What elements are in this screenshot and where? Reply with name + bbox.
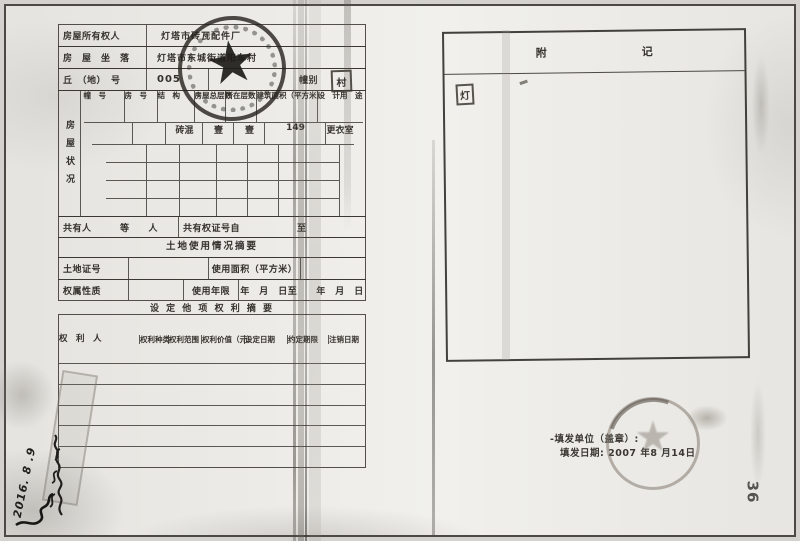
coowner-left: 共有人 等 人	[59, 217, 179, 237]
ownership-nature-label: 权属性质	[59, 280, 129, 300]
land-area-blank	[301, 258, 365, 279]
rights-table-empty-row	[59, 447, 365, 467]
faded-star-icon: ★	[609, 416, 697, 458]
land-section-title: 土地使用情况摘要	[166, 238, 258, 257]
house-table-empty-row	[106, 163, 340, 181]
coowner-row: 共有人 等 人 共有权证号自 至	[58, 216, 366, 238]
tenure-years-label: 使用年限	[184, 280, 239, 300]
land-cert-row: 土地证号 使用面积（平方米）	[58, 257, 366, 280]
stamp-smudge	[686, 405, 728, 431]
house-status-side-label: 房屋状况	[59, 91, 81, 216]
rights-section-title: 设 定 他 项 权 利 摘 要	[150, 301, 274, 314]
remarks-header: 附 记	[444, 30, 744, 75]
plot-box-stamp: 村	[331, 70, 353, 93]
rights-table-empty-row	[59, 364, 365, 385]
land-area-label: 使用面积（平方米）	[209, 258, 301, 279]
house-table-empty-row	[106, 181, 340, 199]
tenure-row: 权属性质 使用年限 年 月 日至 年 月 日	[58, 279, 366, 301]
area-value: 149	[265, 123, 326, 144]
rights-table-empty-row	[59, 426, 365, 447]
corner-box-stamp: 灯	[455, 84, 474, 106]
coowner-right: 共有权证号自 至	[179, 217, 365, 237]
remarks-title-char2: 记	[642, 43, 653, 59]
rights-table-empty-row	[59, 385, 365, 406]
rights-table-empty-row	[59, 406, 365, 427]
floor-value: 壹	[234, 123, 265, 144]
structure-value: 砖混	[166, 123, 203, 144]
land-cert-blank	[129, 258, 209, 279]
ink-mark	[519, 80, 528, 85]
ownership-nature-blank	[129, 280, 184, 300]
rights-table-header: 权 利 人 权利种类 权利范围 权利价值（元） 设定日期 约定期限 注销日期	[59, 315, 365, 364]
total-floors-value: 壹	[203, 123, 234, 144]
building-type-label: 幢别	[295, 73, 318, 86]
tenure-dates: 年 月 日至 年 月 日	[239, 280, 365, 300]
house-table-empty-row	[106, 145, 340, 163]
location-label: 房 屋 坐 落	[59, 47, 147, 68]
plot-label: 丘 （地） 号	[59, 69, 147, 90]
house-table-data-row: 砖混 壹 壹 149 更衣室	[92, 123, 353, 145]
owner-label: 房屋所有权人	[59, 25, 147, 46]
house-table-empty-row	[106, 199, 340, 216]
land-cert-label: 土地证号	[59, 258, 129, 279]
usage-value: 更衣室	[326, 123, 353, 144]
rights-section-title-row: 设 定 他 项 权 利 摘 要	[58, 300, 366, 314]
scanned-certificate-page: 房屋所有权人 灯塔市砖瓦配件厂 房 屋 坐 落 灯塔市东城街道阳车村 丘 （地）…	[0, 0, 800, 541]
page-number: 36	[743, 481, 761, 504]
land-section-title-row: 土地使用情况摘要	[58, 237, 366, 258]
page-number-container: 36	[736, 476, 768, 508]
remarks-title-char1: 附	[536, 45, 547, 61]
rights-table: 权 利 人 权利种类 权利范围 权利价值（元） 设定日期 约定期限 注销日期	[58, 314, 366, 468]
remarks-box: 附 记	[442, 28, 750, 362]
